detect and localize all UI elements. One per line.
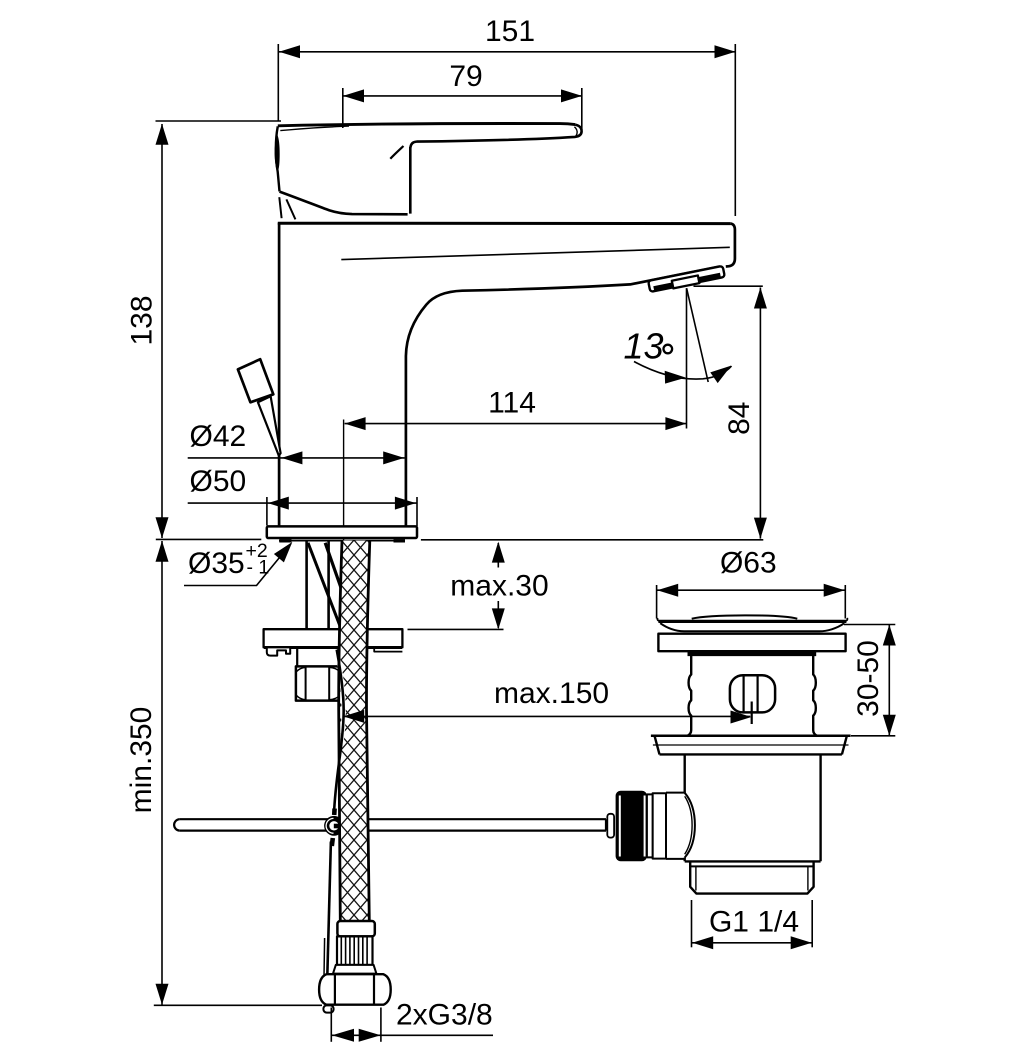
svg-text:max.150: max.150 (494, 677, 609, 710)
svg-text:min.350: min.350 (125, 707, 158, 814)
svg-text:Ø35: Ø35 (188, 547, 245, 580)
svg-text:2xG3/8: 2xG3/8 (396, 998, 493, 1031)
svg-text:13: 13 (624, 326, 664, 367)
svg-text:max.30: max.30 (450, 569, 548, 602)
svg-text:138: 138 (126, 295, 159, 345)
svg-text:30-50: 30-50 (852, 640, 885, 717)
svg-text:Ø50: Ø50 (190, 465, 247, 498)
svg-text:151: 151 (485, 15, 535, 48)
svg-text:84: 84 (723, 402, 756, 435)
svg-text:114: 114 (488, 386, 536, 419)
svg-text:79: 79 (449, 60, 482, 93)
svg-text:Ø42: Ø42 (190, 420, 247, 453)
svg-text:G1 1/4: G1 1/4 (709, 905, 799, 938)
svg-text:Ø63: Ø63 (720, 546, 777, 579)
